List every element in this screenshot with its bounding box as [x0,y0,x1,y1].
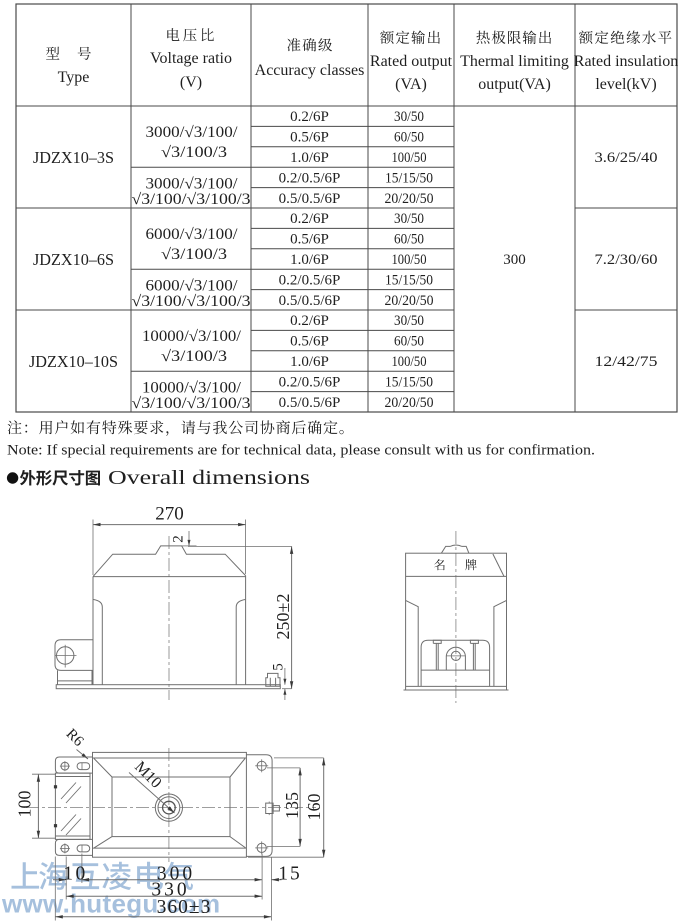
svg-text:15/15/50: 15/15/50 [385,374,433,390]
svg-text:√3/100/√3/100/3: √3/100/√3/100/3 [132,191,251,208]
svg-text:160: 160 [304,794,324,821]
svg-text:(VA): (VA) [395,76,427,93]
svg-text:60/50: 60/50 [394,130,424,146]
svg-text:20/20/50: 20/20/50 [385,293,434,309]
svg-text:1.0/6P: 1.0/6P [290,354,329,370]
svg-text:250±2: 250±2 [273,594,293,640]
svg-text:√3/100/√3/100/3: √3/100/√3/100/3 [132,395,251,412]
svg-text:30/50: 30/50 [394,109,424,125]
svg-text:0.5/0.5/6P: 0.5/0.5/6P [279,191,341,207]
svg-text:300: 300 [503,252,526,268]
svg-text:Voltage ratio: Voltage ratio [150,50,232,67]
svg-text:output(VA): output(VA) [478,76,551,93]
svg-text:60/50: 60/50 [394,334,424,350]
svg-text:60/50: 60/50 [394,232,424,248]
svg-text:360±3: 360±3 [157,897,212,918]
svg-text:0.5/0.5/6P: 0.5/0.5/6P [279,293,341,309]
svg-text:6000/√3/100/: 6000/√3/100/ [146,278,239,295]
svg-text:level(kV): level(kV) [595,76,656,93]
svg-text:Thermal limiting: Thermal limiting [460,53,569,70]
svg-text:JDZX10–3S: JDZX10–3S [33,148,114,167]
svg-text:12/42/75: 12/42/75 [595,354,658,370]
svg-text:√3/100/√3/100/3: √3/100/√3/100/3 [132,293,251,310]
svg-text:0.5/6P: 0.5/6P [290,334,329,350]
svg-text:2: 2 [171,535,187,543]
svg-text:3000/√3/100/: 3000/√3/100/ [146,176,239,193]
svg-text:1.0/6P: 1.0/6P [290,150,329,166]
svg-text:√3/100/3: √3/100/3 [161,348,227,365]
svg-text:100/50: 100/50 [392,252,427,268]
svg-text:100/50: 100/50 [392,354,427,370]
svg-text:3000/√3/100/: 3000/√3/100/ [146,124,239,141]
svg-text:Type: Type [58,69,90,86]
svg-text:0.2/6P: 0.2/6P [290,211,329,227]
svg-text:√3/100/3: √3/100/3 [161,144,227,161]
svg-text:3.6/25/40: 3.6/25/40 [595,150,658,166]
svg-text:0.5/6P: 0.5/6P [290,130,329,146]
svg-text:(V): (V) [180,74,202,91]
svg-text:30/50: 30/50 [394,211,424,227]
svg-text:Rated output: Rated output [370,53,453,70]
svg-text:100: 100 [15,791,35,818]
svg-text:10000/√3/100/: 10000/√3/100/ [142,328,242,345]
svg-text:1.0/6P: 1.0/6P [290,252,329,268]
svg-text:0.5/0.5/6P: 0.5/0.5/6P [279,395,341,411]
svg-text:15/15/50: 15/15/50 [385,170,433,186]
svg-text:0.2/0.5/6P: 0.2/0.5/6P [279,272,341,288]
svg-text:20/20/50: 20/20/50 [385,395,434,411]
svg-text:270: 270 [155,504,184,525]
svg-text:M10: M10 [131,758,164,791]
svg-text:100/50: 100/50 [392,150,427,166]
svg-text:Accuracy classes: Accuracy classes [255,62,365,79]
svg-text:135: 135 [282,792,302,819]
svg-text:10000/√3/100/: 10000/√3/100/ [142,380,242,397]
svg-text:Note: If special requirements: Note: If special requirements are for te… [7,443,595,459]
svg-text:5: 5 [271,663,287,671]
svg-text:0.2/0.5/6P: 0.2/0.5/6P [279,374,341,390]
svg-text:0.2/6P: 0.2/6P [290,313,329,329]
svg-text:30/50: 30/50 [394,313,424,329]
svg-text:7.2/30/60: 7.2/30/60 [595,252,658,268]
svg-text:JDZX10–10S: JDZX10–10S [29,352,118,371]
svg-text:0.2/0.5/6P: 0.2/0.5/6P [279,170,341,186]
svg-text:0.5/6P: 0.5/6P [290,232,329,248]
svg-text:Overall dimensions: Overall dimensions [108,467,310,489]
svg-text:15/15/50: 15/15/50 [385,272,433,288]
svg-text:15: 15 [278,863,302,884]
svg-text:0.2/6P: 0.2/6P [290,109,329,125]
svg-text:Rated insulation: Rated insulation [574,53,678,70]
svg-text:JDZX10–6S: JDZX10–6S [33,250,114,269]
svg-text:√3/100/3: √3/100/3 [161,246,227,263]
svg-text:20/20/50: 20/20/50 [385,191,434,207]
svg-text:6000/√3/100/: 6000/√3/100/ [146,226,239,243]
svg-text:10: 10 [63,863,88,884]
svg-text:R6: R6 [63,726,87,750]
